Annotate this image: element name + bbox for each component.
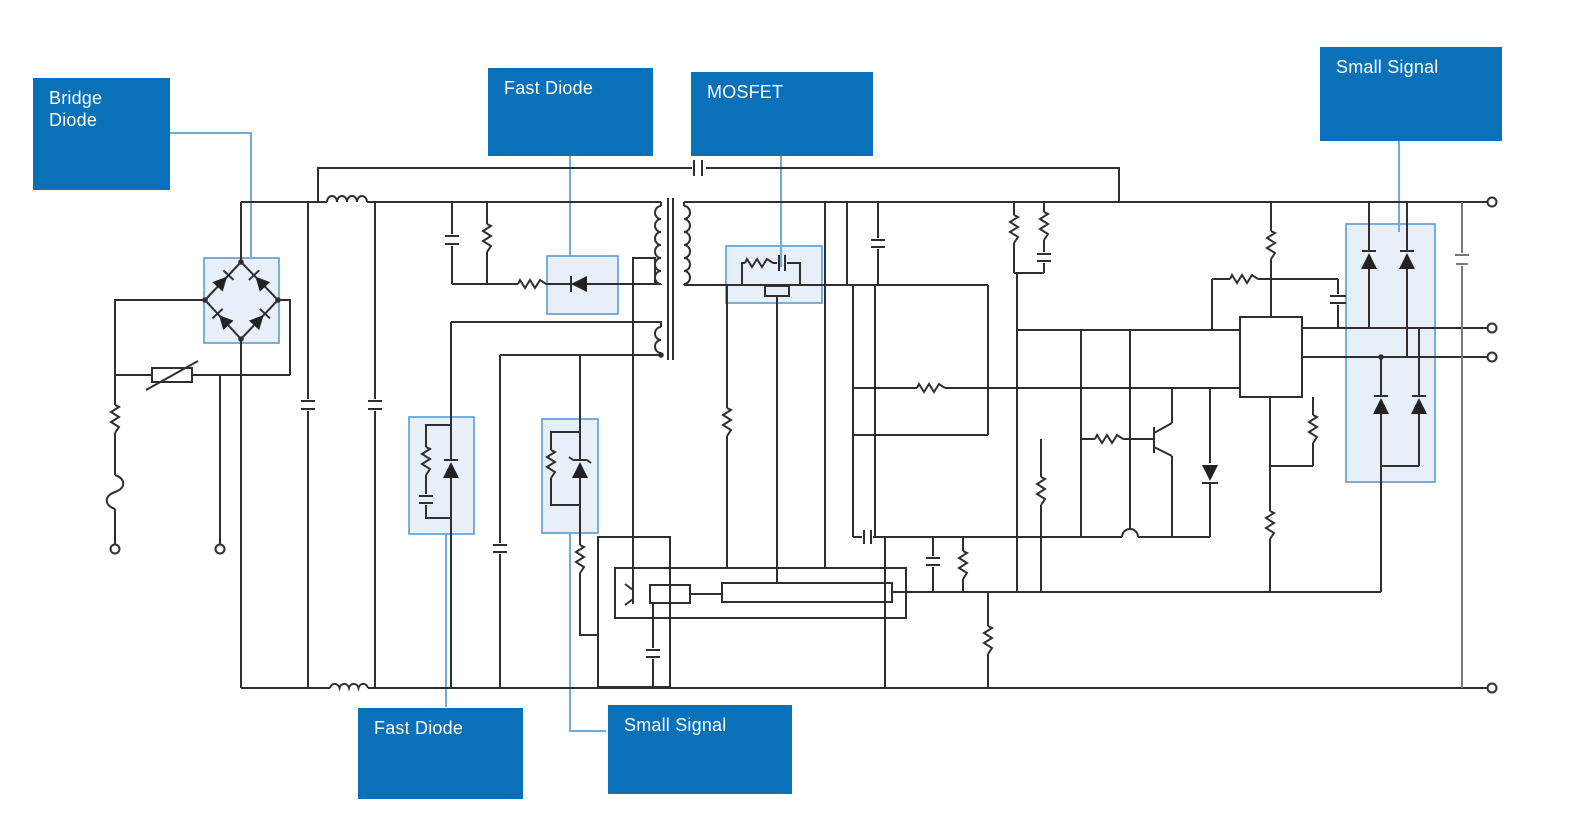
callout-small-signal-right: Small Signal: [1320, 47, 1502, 141]
input-terminal-neutral: [216, 545, 225, 554]
callout-label: Small Signal: [624, 715, 782, 737]
callout-bridge-diode: Bridge Diode: [33, 78, 170, 190]
callout-label: Small Signal: [1336, 57, 1492, 79]
callout-label: Bridge Diode: [49, 88, 121, 131]
output-capacitor: [1455, 202, 1469, 688]
callout-leader-lines: [170, 133, 1399, 731]
highlight-bridge-diode: [204, 258, 279, 343]
diode-symbol-down: [1202, 465, 1218, 481]
output-terminal-3: [1488, 353, 1497, 362]
controller-ic-body: [722, 583, 892, 602]
callout-mosfet: MOSFET: [691, 72, 873, 156]
output-terminal-1: [1488, 198, 1497, 207]
controller-ic-outline: [615, 568, 906, 618]
highlight-fast-diode-bottom: [409, 417, 474, 534]
feedback-network: [853, 202, 1240, 592]
callout-label: Fast Diode: [504, 78, 643, 100]
diagram-canvas: Bridge Diode Fast Diode MOSFET Small Sig…: [0, 0, 1576, 831]
input-terminal-line: [111, 545, 120, 554]
callout-label: Fast Diode: [374, 718, 513, 740]
leader-bridge-diode: [170, 133, 251, 259]
highlight-small-signal-right: [1346, 224, 1435, 482]
callout-fast-diode-bottom: Fast Diode: [358, 708, 523, 799]
callout-small-signal-bottom: Small Signal: [608, 705, 792, 794]
regulator-ic-outline: [1240, 317, 1302, 397]
callout-label: MOSFET: [707, 82, 863, 104]
highlight-mosfet: [726, 246, 822, 303]
emi-filter-capacitors: [301, 202, 382, 688]
callout-fast-diode-top: Fast Diode: [488, 68, 653, 156]
controller-block: [598, 529, 1381, 688]
output-terminal-4: [1488, 684, 1497, 693]
output-terminal-2: [1488, 324, 1497, 333]
component-highlights: [204, 224, 1435, 534]
